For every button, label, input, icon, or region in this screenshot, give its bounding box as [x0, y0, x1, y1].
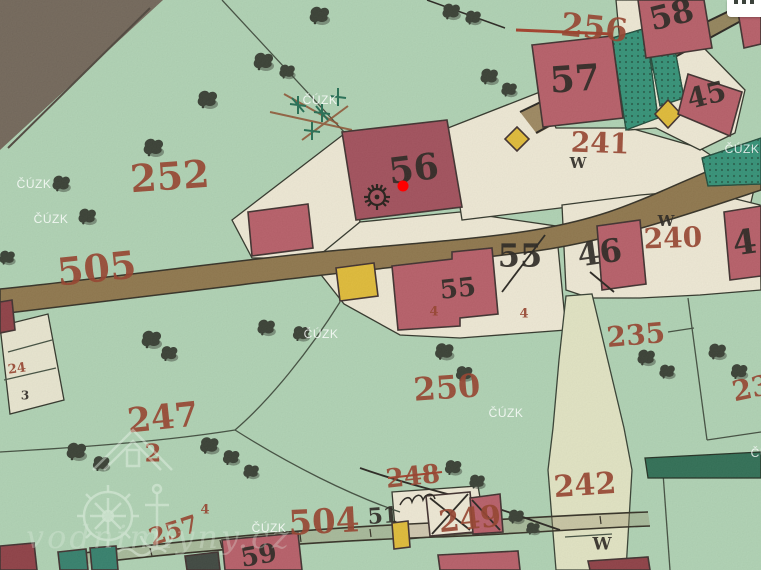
map-viewer: 2525052562412402352502472242248249504257… — [0, 0, 761, 570]
map-options-button[interactable] — [727, 0, 761, 17]
map-marker[interactable] — [398, 181, 409, 192]
cuzk-watermark: ČÚZK — [34, 211, 69, 226]
cuzk-watermark: ČÚZK — [725, 141, 760, 156]
cuzk-watermark: ČÚZK — [751, 445, 761, 460]
brand-watermark-text: vodnimlyny.cz — [26, 518, 292, 556]
cuzk-watermark: ČÚZK — [489, 405, 524, 420]
cuzk-watermark: ČÚZK — [17, 176, 52, 191]
paper-texture — [0, 0, 761, 570]
map-canvas[interactable]: 2525052562412402352502472242248249504257… — [0, 0, 761, 570]
cuzk-watermark: ČÚZK — [304, 326, 339, 341]
ellipsis-icon — [734, 0, 754, 4]
cuzk-watermark: ČÚZK — [303, 92, 338, 107]
